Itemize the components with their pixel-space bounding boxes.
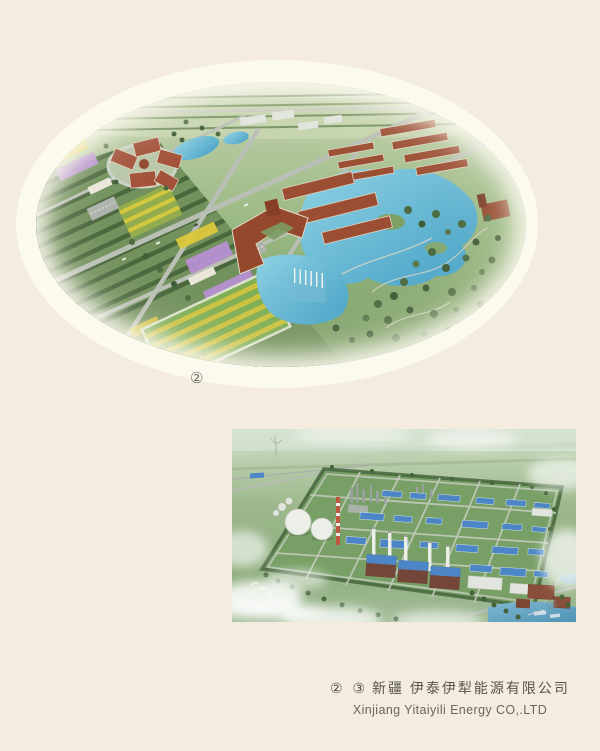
company-name-en: Xinjiang Yitaiyili Energy CO,.LTD bbox=[318, 703, 582, 717]
caption-figure-markers: ② ③ bbox=[330, 680, 368, 696]
company-name-zh: 新疆 伊泰伊犁能源有限公司 bbox=[372, 680, 570, 696]
plant-aerial-photo: ③ bbox=[232, 429, 576, 622]
figure-marker-2: ② bbox=[190, 369, 203, 387]
figure-marker-3: ③ bbox=[546, 597, 558, 613]
brochure-page: ② bbox=[0, 0, 600, 751]
campus-aerial-photo bbox=[36, 82, 526, 367]
caption-line-zh: ② ③新疆 伊泰伊犁能源有限公司 bbox=[318, 678, 582, 698]
plant-aerial-image bbox=[232, 429, 576, 622]
caption: ② ③新疆 伊泰伊犁能源有限公司 Xinjiang Yitaiyili Ener… bbox=[318, 678, 582, 717]
campus-aerial-image bbox=[36, 82, 526, 367]
chimney bbox=[336, 497, 340, 545]
